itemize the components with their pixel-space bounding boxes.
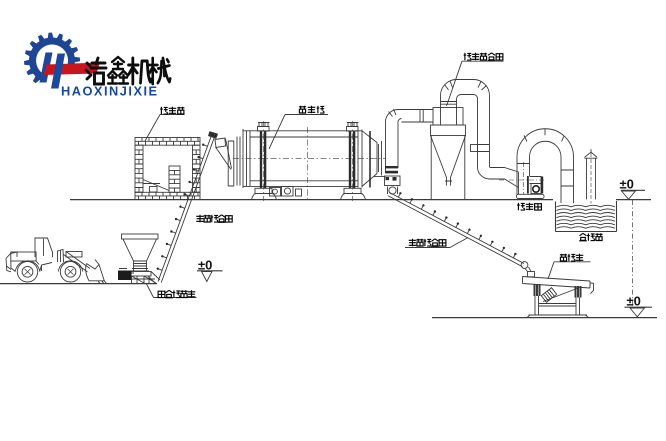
svg-text:±0: ±0	[620, 177, 634, 192]
svg-text:HAOXINJIXIE: HAOXINJIXIE	[61, 84, 159, 99]
svg-text:±0: ±0	[627, 294, 641, 309]
svg-text:±0: ±0	[198, 258, 212, 273]
